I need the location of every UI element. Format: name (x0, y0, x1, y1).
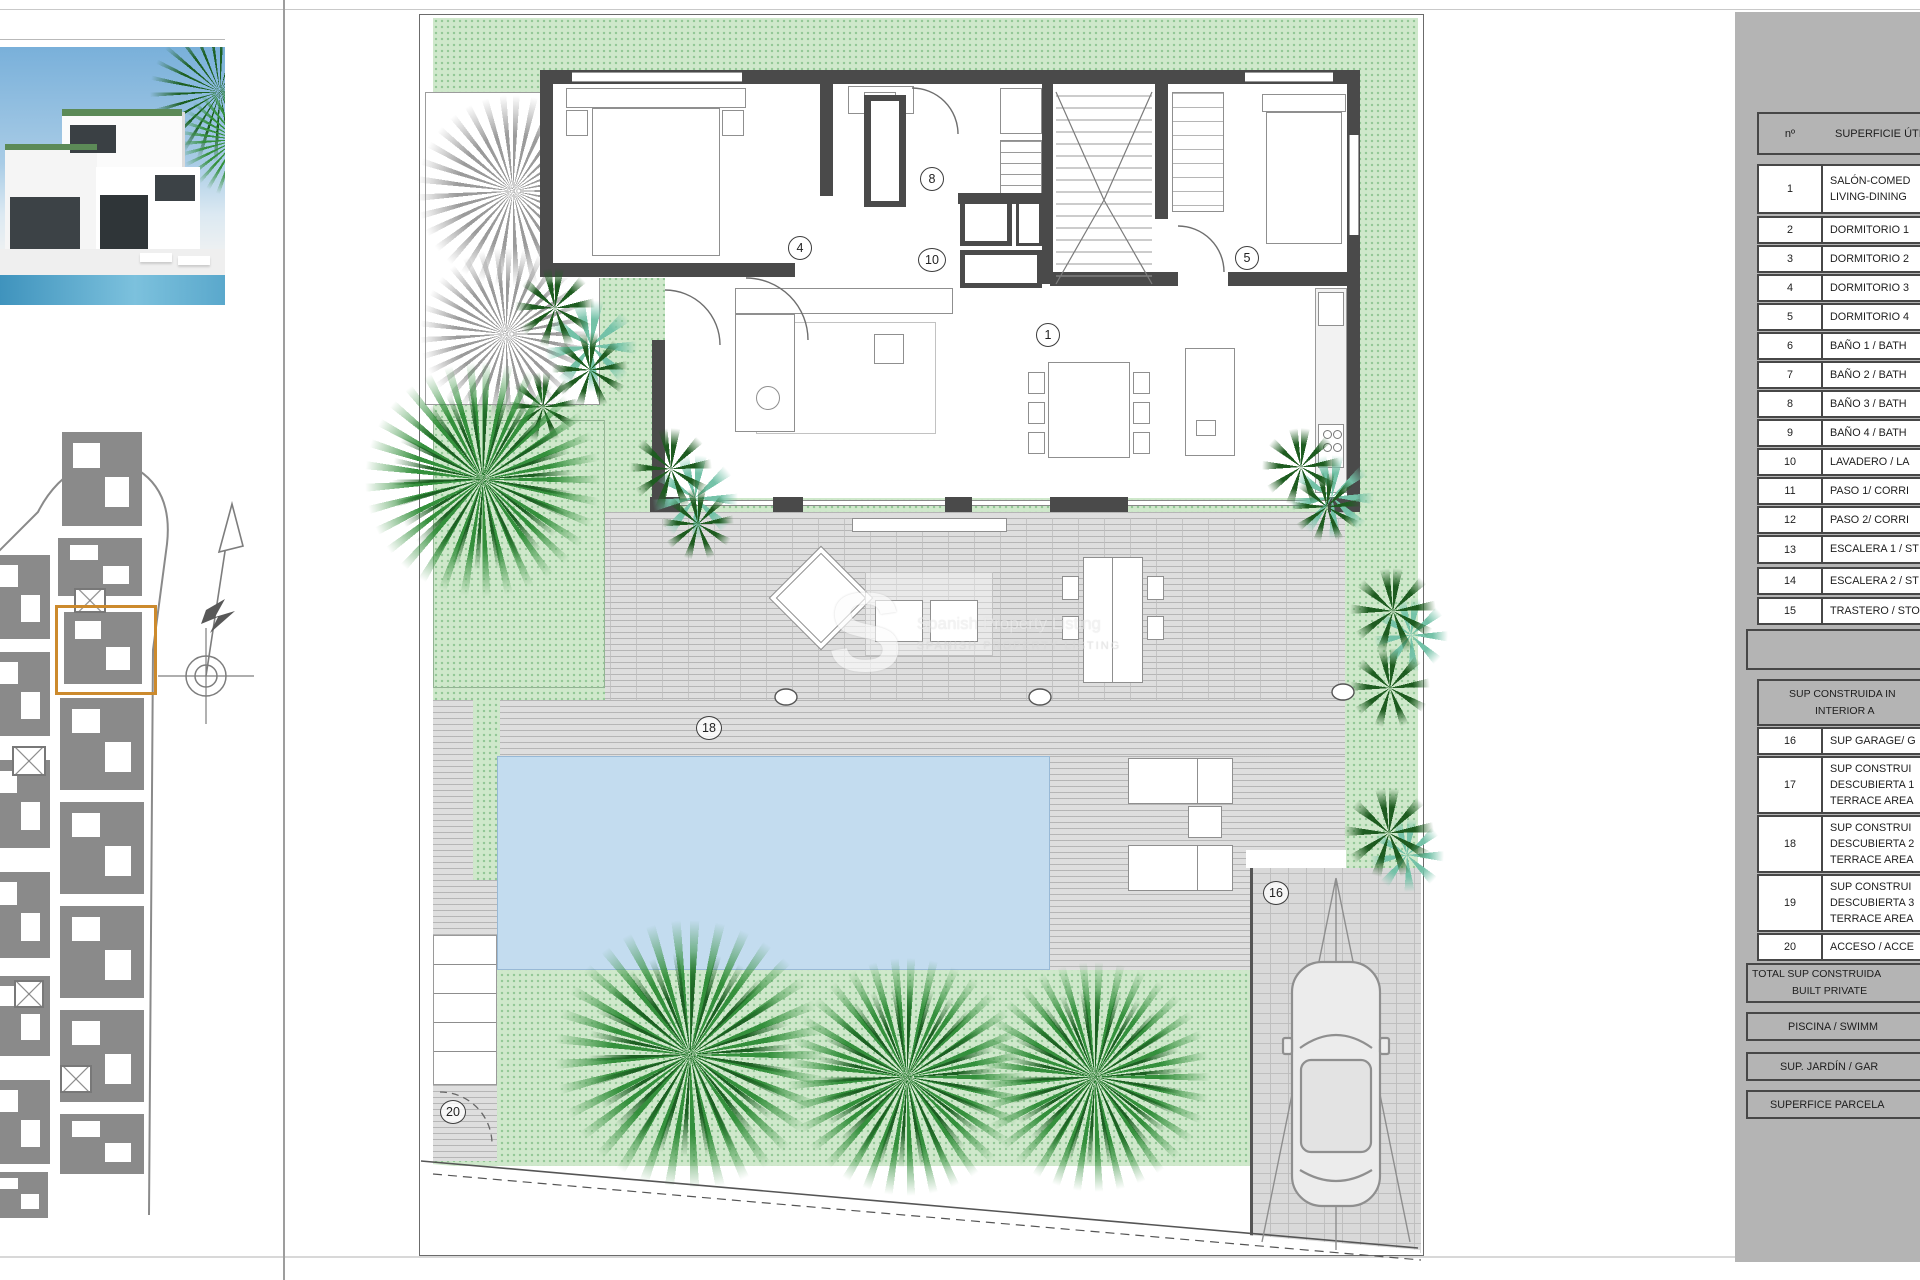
sofa (735, 314, 795, 432)
table-row: 14 ESCALERA 2 / ST (1757, 567, 1920, 595)
fridge (1318, 292, 1344, 326)
site-unit (0, 1172, 48, 1218)
lounger-table (1188, 806, 1222, 838)
storage-room (960, 250, 1042, 288)
sheet-divider-line (283, 0, 285, 1280)
outdoor-chair (1062, 576, 1079, 600)
bed (1266, 112, 1342, 244)
side-path (433, 880, 497, 935)
window (1349, 135, 1359, 235)
outdoor-chair (1147, 576, 1164, 600)
table-row: 15 TRASTERO / STO (1757, 597, 1920, 625)
area-label-terrace: 18 (696, 716, 722, 740)
site-unit (60, 802, 144, 894)
bush-icon (1350, 568, 1436, 654)
table-row: 9 BAÑO 4 / BATH (1757, 419, 1920, 447)
entrance-steps (433, 935, 497, 1085)
site-unit (0, 1080, 50, 1164)
site-unit (60, 906, 144, 998)
bed (566, 88, 746, 108)
table-row: 5 DORMITORIO 4 (1757, 303, 1920, 331)
site-highlight-box (55, 605, 157, 695)
wall (958, 193, 1050, 204)
photo-lounger (178, 256, 210, 265)
wall (540, 84, 553, 277)
table-row: 4 DORMITORIO 3 (1757, 274, 1920, 302)
table-row: 3 DORMITORIO 2 (1757, 245, 1920, 273)
palm-icon (392, 388, 574, 570)
nightstand (722, 110, 744, 136)
table-row: 19 SUP CONSTRUIDESCUBIERTA 3TERRACE AREA (1757, 874, 1920, 932)
nightstand (566, 110, 588, 136)
bush-icon (1344, 788, 1434, 878)
architectural-sheet: S Spanish Property Listing SPANISH PROPE… (0, 0, 1920, 1280)
useful-table-header: nº SUPERFICIE ÚTI (1757, 112, 1920, 155)
palm-icon (588, 952, 793, 1157)
useful-total-band (1746, 629, 1920, 670)
pool-apron (500, 700, 1345, 756)
storage-room (960, 198, 1012, 246)
wall (1050, 272, 1178, 286)
sheet-bottom-line (0, 1256, 1920, 1258)
parcel-area-box: SUPERFICE PARCELA (1746, 1090, 1920, 1119)
table-row: 6 BAÑO 1 / BATH (1757, 332, 1920, 360)
side-table-round (756, 386, 780, 410)
access-pad (433, 1085, 497, 1161)
table-row: 2 DORMITORIO 1 (1757, 216, 1920, 244)
pergola-beam (852, 518, 1007, 532)
side-path (433, 700, 473, 880)
glass-wall (652, 500, 1352, 506)
shelves (1000, 140, 1042, 196)
site-plan (0, 420, 270, 1220)
chair (1133, 402, 1150, 424)
site-unit (60, 698, 144, 790)
table-row: 1 SALÓN-COMEDLIVING-DINING (1757, 164, 1920, 214)
island-sink (1196, 420, 1216, 436)
coffee-table (874, 334, 904, 364)
table-row: 16 SUP GARAGE/ G (1757, 727, 1920, 755)
site-unit (0, 652, 50, 736)
window (1245, 72, 1333, 82)
table-row: 12 PASO 2/ CORRI (1757, 506, 1920, 534)
table-row: 13 ESCALERA 1 / ST (1757, 535, 1920, 564)
table-row: 20 ACCESO / ACCE (1757, 933, 1920, 961)
swimming-pool (497, 756, 1050, 970)
garden-area-box: SUP. JARDÍN / GAR (1746, 1052, 1920, 1081)
area-label-access: 20 (440, 1100, 466, 1124)
built-table-header: SUP CONSTRUIDA IN INTERIOR A (1757, 679, 1920, 726)
site-unit (62, 432, 142, 526)
pool-area-box: PISCINA / SWIMM (1746, 1012, 1920, 1041)
area-label-garage: 16 (1263, 881, 1289, 905)
photo-top-line (0, 39, 225, 40)
photo-window (155, 175, 195, 201)
outdoor-chair (1062, 616, 1079, 640)
site-crossed-plot (14, 980, 44, 1008)
room-label-hall: 10 (918, 248, 946, 272)
photo-hedge (62, 109, 182, 116)
bush-icon (1292, 472, 1362, 542)
driveway (1250, 868, 1421, 1253)
room-label-living: 1 (1036, 323, 1060, 347)
washer (1000, 88, 1042, 134)
wardrobe (1172, 92, 1224, 212)
outdoor-chair (1147, 616, 1164, 640)
photo-window (100, 195, 148, 253)
col-label-header: SUPERFICIE ÚTI (1821, 128, 1920, 140)
bush-icon (662, 488, 734, 560)
sun-lounger (1128, 758, 1233, 804)
kitchen-island (1185, 348, 1235, 456)
chair (1133, 432, 1150, 454)
bed (1262, 94, 1346, 112)
dining-table (1048, 362, 1130, 458)
wall-wardrobe (864, 95, 906, 207)
window (572, 72, 742, 82)
table-row: 10 LAVADERO / LA (1757, 448, 1920, 476)
photo-pool (0, 275, 225, 305)
palm-icon (816, 986, 998, 1168)
site-crossed-plot (60, 1065, 92, 1093)
room-label-bathroom: 8 (920, 167, 944, 191)
col-num-header: nº (1759, 128, 1821, 140)
room-label-bedroom4: 5 (1235, 246, 1259, 270)
wall (1155, 84, 1168, 219)
wall-pier (773, 497, 803, 512)
wall (820, 84, 833, 196)
site-crossed-plot (12, 746, 46, 776)
bush-icon (1350, 648, 1430, 728)
outdoor-table (1083, 557, 1143, 683)
photo-lounger (140, 253, 172, 262)
outdoor-sofa (875, 600, 923, 642)
sofa (735, 288, 953, 314)
sheet-top-line (0, 9, 1920, 10)
driveway-gap (1246, 850, 1346, 868)
wall-pier (945, 497, 972, 512)
site-unit (0, 555, 50, 639)
chair (1028, 372, 1045, 394)
table-row: 17 SUP CONSTRUIDESCUBIERTA 1TERRACE AREA (1757, 756, 1920, 814)
table-row: 8 BAÑO 3 / BATH (1757, 390, 1920, 418)
photo-hedge (5, 144, 97, 150)
site-unit (0, 872, 50, 958)
villa-photo (0, 47, 225, 305)
built-total-band: TOTAL SUP CONSTRUIDA BUILT PRIVATE (1746, 963, 1920, 1003)
storage-room (1016, 198, 1042, 246)
table-row: 11 PASO 1/ CORRI (1757, 477, 1920, 505)
chair (1133, 372, 1150, 394)
wall-pier (1050, 497, 1128, 512)
wall (1042, 84, 1053, 284)
room-label-bedroom3: 4 (788, 236, 812, 260)
sun-lounger (1128, 845, 1233, 891)
table-row: 18 SUP CONSTRUIDESCUBIERTA 2TERRACE AREA (1757, 815, 1920, 873)
chair (1028, 402, 1045, 424)
bed (592, 108, 720, 256)
outdoor-sofa (930, 600, 978, 642)
chair (1028, 432, 1045, 454)
wall (1228, 272, 1360, 286)
photo-window (10, 197, 80, 249)
table-row: 7 BAÑO 2 / BATH (1757, 361, 1920, 389)
palm-icon (1007, 989, 1183, 1165)
site-unit (60, 1114, 144, 1174)
